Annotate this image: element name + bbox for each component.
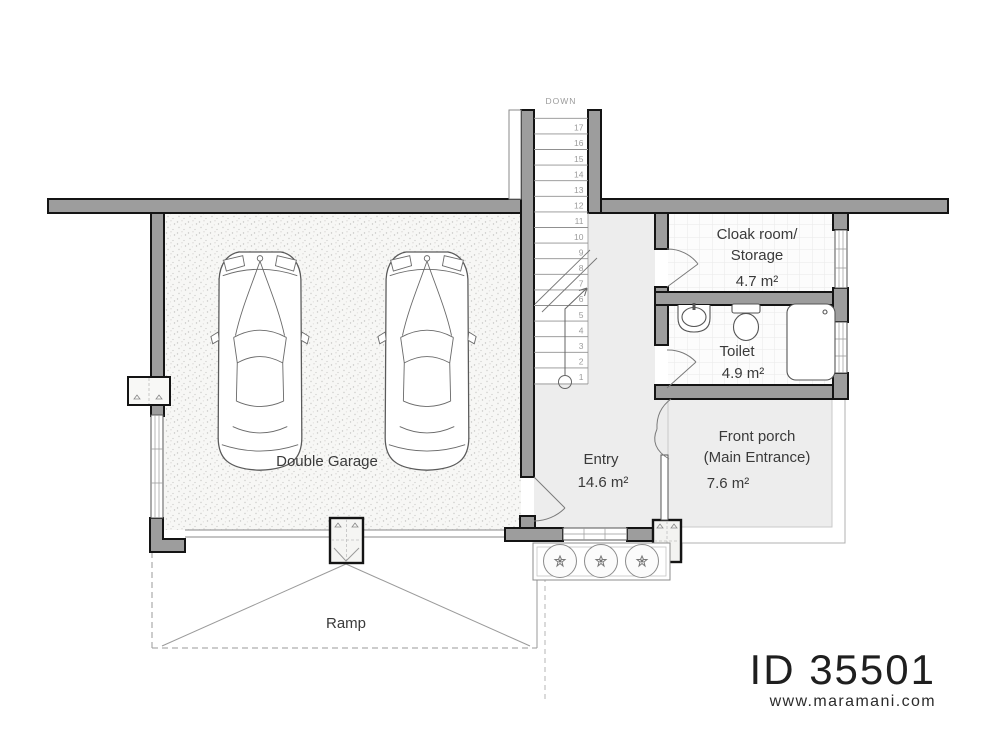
wall-garage-left-stub: [151, 405, 164, 416]
stair-step-number: 12: [574, 201, 584, 211]
ramp-label: Ramp: [326, 615, 366, 632]
stair-step-number: 7: [579, 279, 584, 289]
cloak-label-line2: Storage: [731, 247, 784, 264]
stair-step-number: 17: [574, 123, 584, 133]
wall-stair-left: [521, 110, 534, 477]
stair-step-number: 16: [574, 138, 584, 148]
stair-step-number: 2: [579, 357, 584, 367]
wall-entry-bottom-right: [627, 528, 655, 541]
entry-area: 14.6 m²: [578, 474, 629, 491]
wall-cloak-left-upper: [655, 213, 668, 249]
wall-entry-bottom-left: [505, 528, 563, 541]
sink-basin: [682, 308, 706, 327]
shrub-icon: [544, 545, 577, 578]
cloak-label-line1: Cloak room/: [717, 226, 799, 243]
window-toilet-right: [835, 322, 847, 373]
toilet-area: 4.9 m²: [722, 365, 765, 382]
entry-label: Entry: [583, 451, 619, 468]
shrub-icon: [626, 545, 659, 578]
car-icon: [211, 252, 309, 470]
wall-cloak-toilet-divider: [655, 292, 848, 305]
shrub-icon: [585, 545, 618, 578]
toilet-icon: [734, 314, 759, 341]
floor-plan-canvas: 1234567891011121314151617 DOWN: [0, 0, 1000, 746]
stair-step-number: 10: [574, 232, 584, 242]
sink-tap: [693, 303, 696, 310]
entry-floor-upper: [588, 213, 655, 385]
wall-top-left: [48, 199, 521, 213]
stair-step-number: 5: [579, 310, 584, 320]
stair-step-number: 1: [579, 372, 584, 382]
toilet-tank: [732, 304, 760, 313]
floor-plan-drawing: 1234567891011121314151617 DOWN: [0, 0, 1000, 746]
wall-entry-bottom-stub: [520, 516, 535, 528]
stair-step-number: 9: [579, 247, 584, 257]
wall-top-right: [601, 199, 948, 213]
stair-step-number: 15: [574, 154, 584, 164]
stair-down-label: DOWN: [546, 96, 577, 106]
window-cloak-right: [835, 230, 847, 288]
toilet-label: Toilet: [719, 343, 755, 360]
cloak-area: 4.7 m²: [736, 273, 779, 290]
stair-step-number: 13: [574, 185, 584, 195]
window-garage-left: [151, 415, 163, 518]
porch-label-line1: Front porch: [719, 428, 796, 445]
porch-area: 7.6 m²: [707, 475, 750, 492]
wall-garage-left: [151, 213, 164, 378]
stair-step-number: 11: [575, 216, 584, 226]
website-url: www.maramani.com: [769, 693, 936, 710]
stair-step-number: 3: [579, 341, 584, 351]
garage-label: Double Garage: [276, 453, 378, 470]
wall-right-corner-top: [833, 213, 848, 230]
lower-floor-outline: [509, 110, 521, 199]
shrubs: [544, 545, 659, 578]
stair-step-number: 14: [574, 169, 584, 179]
shower-icon: [787, 304, 835, 380]
stair-step-number: 4: [579, 325, 584, 335]
car-icon: [378, 252, 476, 470]
planter: [533, 543, 670, 580]
wall-stair-right: [588, 110, 601, 213]
plan-id: ID 35501: [750, 646, 936, 693]
wall-toilet-bottom: [655, 385, 848, 399]
branding: ID 35501 www.maramani.com: [750, 646, 936, 710]
wall-right-corner-bottom: [833, 373, 848, 399]
porch-label-line2: (Main Entrance): [704, 449, 811, 466]
porch-railing: [661, 455, 668, 520]
